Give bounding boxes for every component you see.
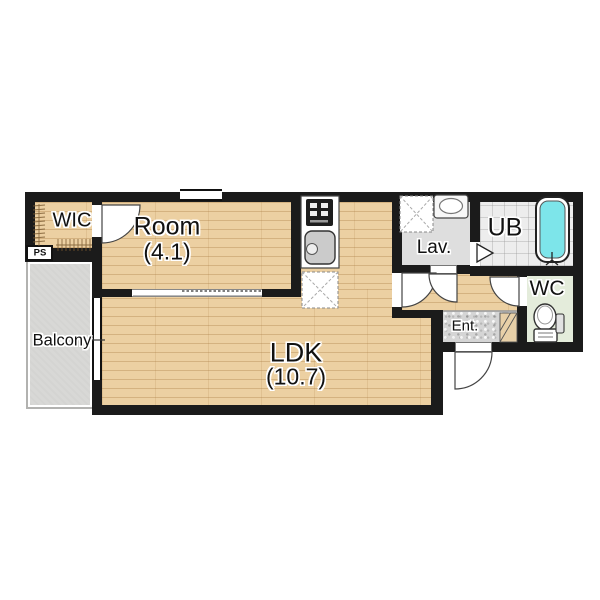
washing-machine-space	[400, 196, 433, 232]
ldk-size: (10.7)	[266, 364, 326, 391]
fixtures-layer	[0, 0, 600, 600]
door-swing-arc-lavatory	[429, 274, 457, 302]
ps-label: PS	[34, 248, 47, 259]
door-swing-arc-wc	[490, 277, 519, 306]
door-swing-arc-entrance	[455, 352, 492, 389]
floor-plan: WIC PS Room (4.1) LDK (10.7) Balcony Lav…	[0, 0, 600, 600]
kitchen-sink-icon	[305, 231, 335, 264]
room-size: (4.1)	[143, 239, 190, 266]
bathtub-icon	[536, 197, 569, 265]
washbasin-icon	[434, 195, 468, 218]
shoe-cabinet	[500, 313, 517, 342]
hanger-pipe-icon-left	[33, 204, 45, 246]
lav-label: Lav.	[417, 237, 452, 259]
toilet-icon	[534, 304, 564, 342]
stove-icon	[306, 199, 333, 226]
wc-label: WC	[530, 277, 565, 301]
folding-door-icon	[477, 244, 493, 262]
refrigerator-space	[302, 272, 338, 308]
ent-label: Ent.	[452, 318, 479, 335]
balcony-label: Balcony	[33, 332, 92, 351]
wic-label: WIC	[53, 210, 92, 233]
sliding-door-track	[133, 291, 262, 296]
room-label: Room	[134, 213, 201, 242]
hanger-pipe-icon-bottom	[56, 239, 92, 251]
ub-label: UB	[488, 214, 523, 243]
